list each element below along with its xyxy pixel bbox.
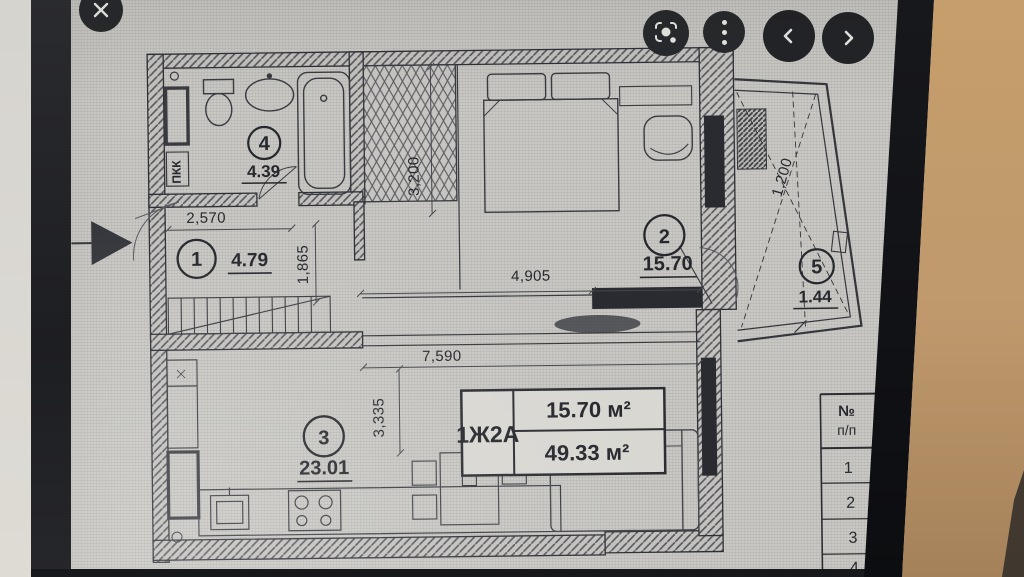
- legend-row-2: 2: [846, 495, 855, 512]
- room-5-number: 5: [811, 256, 822, 278]
- dim-bedroom-width: 4,905: [511, 268, 551, 285]
- room-2-number: 2: [659, 226, 670, 248]
- lens-scan-icon: [653, 20, 679, 46]
- dim-living-width: 7,590: [422, 348, 462, 365]
- legend-header-pp: п/п: [837, 422, 856, 438]
- room-2-area: 15.70: [643, 253, 693, 276]
- next-button[interactable]: [822, 12, 874, 64]
- chevron-right-icon: [838, 28, 858, 48]
- three-dot-menu-icon: [722, 20, 727, 45]
- legend-row-3: 3: [849, 530, 858, 547]
- unit-total-area: 49.33 м²: [544, 440, 629, 466]
- dim-balcony-depth: 1,200: [769, 156, 796, 199]
- room-4-number: 4: [259, 133, 271, 155]
- dim-living-depth: 3,335: [370, 398, 387, 438]
- staircase: [168, 296, 330, 334]
- room-1-area: 4.79: [231, 250, 268, 271]
- legend-row-1: 1: [844, 460, 853, 477]
- close-icon: [92, 1, 110, 19]
- riser-label: ПКК: [169, 160, 183, 184]
- bedroom-furniture: [483, 72, 693, 213]
- dim-hall-width: 2,570: [186, 209, 226, 226]
- monitor-bezel-bottom: [31, 569, 903, 577]
- lens-button[interactable]: [643, 10, 689, 56]
- unit-info-table: 1Ж2А 15.70 м² 49.33 м²: [456, 388, 666, 486]
- menu-button[interactable]: [703, 11, 745, 53]
- room-5-area: 1.44: [798, 287, 832, 306]
- room-3-number: 3: [318, 427, 329, 449]
- legend-header-no: №: [838, 403, 855, 420]
- room-1-number: 1: [191, 249, 202, 271]
- unit-code: 1Ж2А: [456, 421, 519, 448]
- monitor-bezel-left: [31, 0, 71, 577]
- prev-button[interactable]: [763, 10, 815, 62]
- unit-living-area: 15.70 м²: [546, 397, 631, 423]
- dim-hall-depth: 1,865: [294, 245, 311, 285]
- room-3-area: 23.01: [299, 457, 349, 480]
- room-4-area: 4.39: [247, 162, 280, 181]
- left-wall-background: [0, 0, 31, 577]
- dim-closet-height: 3,200: [405, 156, 422, 196]
- decor-blob: [554, 314, 640, 333]
- chevron-left-icon: [779, 26, 799, 46]
